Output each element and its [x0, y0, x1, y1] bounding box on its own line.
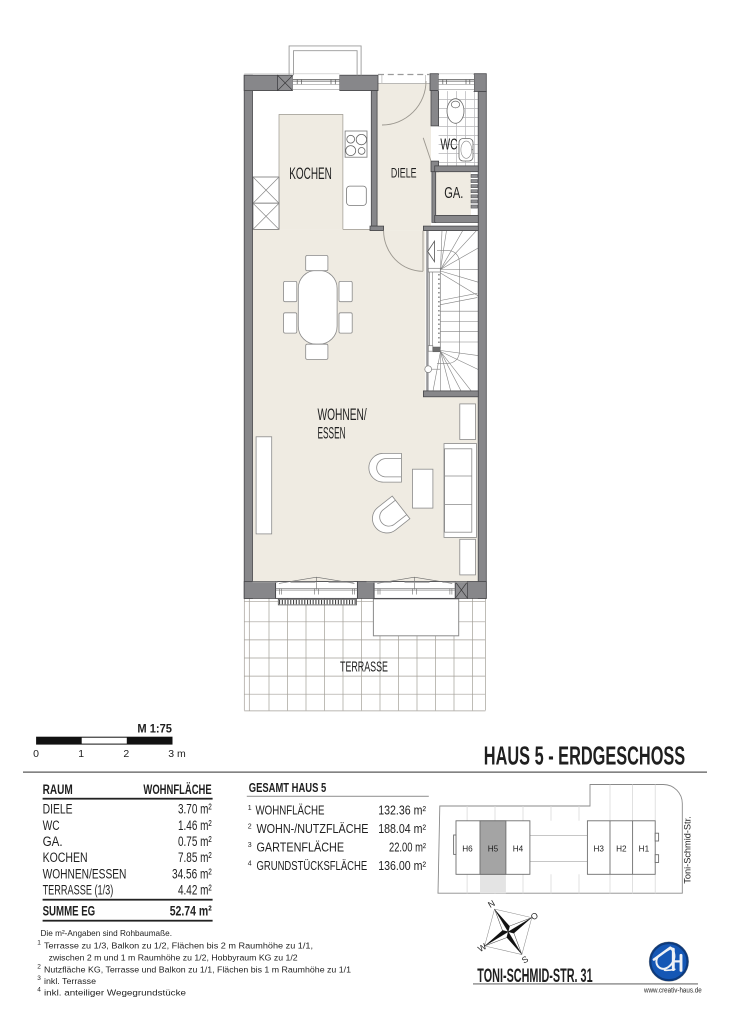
svg-text:inkl. Terrasse: inkl. Terrasse — [44, 976, 96, 986]
svg-text:7.85 m²: 7.85 m² — [178, 850, 212, 866]
svg-text:ESSEN: ESSEN — [318, 424, 346, 442]
svg-text:3: 3 — [37, 975, 41, 982]
svg-text:WOHN-/NUTZFLÄCHE: WOHN-/NUTZFLÄCHE — [257, 821, 369, 836]
svg-text:3.70 m²: 3.70 m² — [178, 802, 212, 818]
svg-text:WC: WC — [440, 137, 457, 154]
svg-text:GESAMT HAUS 5: GESAMT HAUS 5 — [249, 780, 326, 795]
svg-text:132.36 m²: 132.36 m² — [378, 803, 426, 818]
svg-text:WOHNFLÄCHE: WOHNFLÄCHE — [143, 781, 211, 798]
svg-text:WOHNEN/: WOHNEN/ — [318, 406, 367, 424]
svg-text:SUMME EG: SUMME EG — [43, 903, 96, 919]
svg-text:0: 0 — [33, 748, 39, 760]
svg-text:GA.: GA. — [444, 185, 463, 202]
svg-text:M 1:75: M 1:75 — [137, 721, 172, 735]
svg-text:Nutzfläche KG, Terrasse und Ba: Nutzfläche KG, Terrasse und Balkon zu 1/… — [44, 964, 351, 974]
svg-text:4: 4 — [37, 987, 41, 994]
svg-text:188.04 m²: 188.04 m² — [378, 821, 426, 836]
svg-text:3: 3 — [248, 842, 252, 849]
svg-text:DIELE: DIELE — [43, 802, 73, 818]
svg-text:DIELE: DIELE — [391, 164, 417, 180]
svg-text:22.00 m²: 22.00 m² — [389, 840, 426, 855]
svg-text:52.74 m²: 52.74 m² — [170, 903, 212, 919]
svg-text:2: 2 — [123, 748, 129, 760]
svg-text:Terrasse zu 1/3, Balkon zu 1/: Terrasse zu 1/3, Balkon zu 1/2, Flächen … — [44, 940, 313, 950]
svg-text:GRUNDSTÜCKSFLÄCHE: GRUNDSTÜCKSFLÄCHE — [257, 858, 368, 873]
svg-text:2: 2 — [248, 824, 252, 831]
svg-text:WOHNFLÄCHE: WOHNFLÄCHE — [256, 803, 325, 818]
svg-text:inkl. anteiliger Wegegrundstüc: inkl. anteiliger Wegegrundstücke — [44, 988, 186, 998]
svg-text:4.42 m²: 4.42 m² — [178, 883, 212, 899]
svg-text:H5: H5 — [488, 845, 499, 854]
svg-text:zwischen 2 m und 1 m Raumhöhe: zwischen 2 m und 1 m Raumhöhe zu 1/2, Ho… — [49, 952, 298, 962]
svg-text:H3: H3 — [593, 845, 604, 854]
svg-text:RAUM: RAUM — [43, 782, 73, 798]
svg-text:4: 4 — [248, 861, 252, 868]
svg-text:TERRASSE (1/3): TERRASSE (1/3) — [43, 883, 114, 899]
svg-text:H6: H6 — [462, 845, 473, 854]
svg-text:34.56 m²: 34.56 m² — [172, 866, 212, 882]
svg-text:H1: H1 — [639, 845, 650, 854]
svg-text:3 m: 3 m — [168, 748, 186, 760]
svg-text:KOCHEN: KOCHEN — [43, 850, 88, 866]
svg-text:GARTENFLÄCHE: GARTENFLÄCHE — [257, 840, 345, 855]
svg-text:KOCHEN: KOCHEN — [289, 165, 332, 183]
svg-text:1: 1 — [37, 940, 41, 947]
svg-text:WOHNEN/ESSEN: WOHNEN/ESSEN — [43, 866, 127, 882]
svg-text:Die m²-Angaben sind Rohbaumaße: Die m²-Angaben sind Rohbaumaße. — [41, 928, 173, 938]
svg-text:0.75 m²: 0.75 m² — [178, 834, 212, 850]
svg-text:TERRASSE: TERRASSE — [340, 660, 388, 676]
svg-text:136.00 m²: 136.00 m² — [378, 858, 426, 873]
svg-text:www.creativ-haus.de: www.creativ-haus.de — [643, 988, 702, 995]
svg-text:H4: H4 — [513, 845, 524, 854]
svg-text:WC: WC — [43, 818, 60, 834]
svg-text:Toni-Schmid-Str.: Toni-Schmid-Str. — [683, 816, 693, 883]
svg-text:1: 1 — [248, 805, 252, 812]
svg-text:GA.: GA. — [43, 834, 63, 850]
svg-text:HAUS 5 - ERDGESCHOSS: HAUS 5 - ERDGESCHOSS — [484, 741, 685, 771]
svg-text:H2: H2 — [616, 845, 627, 854]
svg-text:1: 1 — [78, 748, 84, 760]
svg-text:1.46 m²: 1.46 m² — [178, 818, 212, 834]
svg-text:2: 2 — [37, 964, 41, 971]
